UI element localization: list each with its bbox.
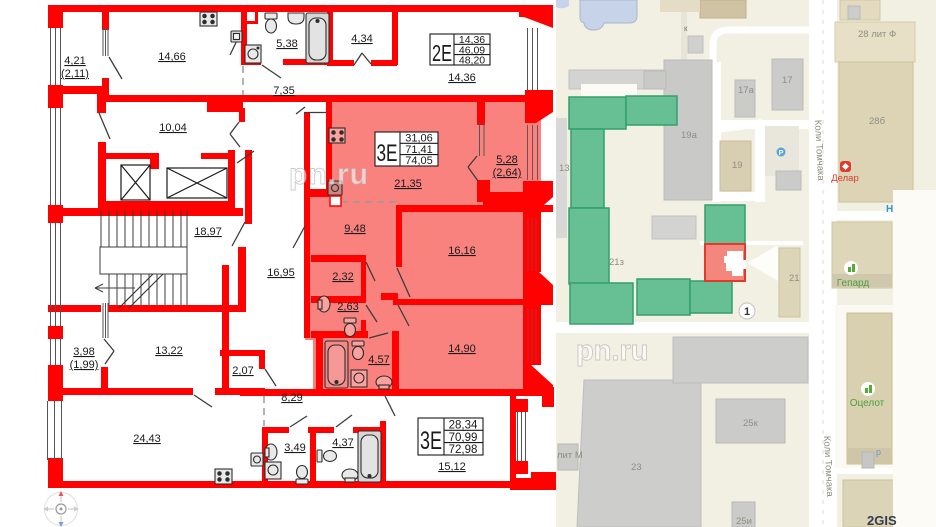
svg-text:21,35: 21,35 (394, 178, 422, 190)
svg-text:к: к (684, 24, 688, 33)
svg-text:3,49: 3,49 (284, 442, 305, 454)
svg-text:2,63: 2,63 (337, 301, 358, 313)
svg-text:pn.ru: pn.ru (576, 335, 649, 367)
svg-text:10,04: 10,04 (159, 122, 187, 134)
svg-text:(2,64): (2,64) (493, 167, 522, 179)
svg-text:5,28: 5,28 (496, 154, 517, 166)
svg-text:13,22: 13,22 (155, 345, 183, 357)
svg-text:21з: 21з (609, 257, 624, 268)
svg-text:4,57: 4,57 (368, 354, 389, 366)
svg-text:7,35: 7,35 (273, 85, 294, 97)
svg-text:14,36: 14,36 (448, 72, 476, 84)
svg-text:2,32: 2,32 (332, 271, 353, 283)
svg-text:31,06: 31,06 (405, 133, 433, 145)
svg-text:16,16: 16,16 (448, 245, 476, 257)
svg-text:Делар: Делар (831, 173, 859, 184)
svg-text:р: р (876, 447, 881, 457)
svg-text:8,29: 8,29 (281, 392, 302, 404)
svg-text:2Е: 2Е (432, 40, 452, 66)
svg-text:2GIS: 2GIS (867, 513, 897, 527)
svg-text:14,90: 14,90 (448, 343, 476, 355)
svg-text:3Е: 3Е (377, 140, 398, 167)
svg-text:2,07: 2,07 (232, 365, 253, 377)
svg-text:Н: Н (886, 204, 893, 215)
svg-text:4,34: 4,34 (351, 33, 372, 45)
svg-text:pn.ru: pn.ru (289, 158, 369, 191)
svg-text:24,43: 24,43 (133, 433, 161, 445)
svg-text:3Е: 3Е (420, 427, 442, 455)
svg-text:19а: 19а (681, 130, 698, 141)
svg-text:Гепард: Гепард (837, 278, 870, 289)
svg-text:74,05: 74,05 (405, 155, 433, 167)
svg-text:Р: Р (778, 148, 783, 157)
svg-text:4,21: 4,21 (64, 55, 85, 67)
svg-text:14,66: 14,66 (158, 51, 186, 63)
svg-text:25к: 25к (743, 418, 759, 429)
svg-text:28,34: 28,34 (449, 420, 478, 432)
svg-text:(1,99): (1,99) (70, 359, 99, 371)
svg-text:18,97: 18,97 (194, 226, 222, 238)
svg-text:4,37: 4,37 (332, 437, 353, 449)
svg-text:17а: 17а (738, 85, 755, 96)
svg-text:Оцелот: Оцелот (850, 398, 885, 409)
svg-text:15,12: 15,12 (438, 461, 466, 473)
svg-text:28б: 28б (869, 116, 886, 127)
svg-text:5,38: 5,38 (276, 38, 297, 50)
svg-text:28 лит Ф: 28 лит Ф (858, 29, 896, 40)
svg-text:70,99: 70,99 (449, 432, 478, 444)
svg-text:23: 23 (631, 462, 642, 473)
svg-text:1: 1 (744, 306, 750, 318)
svg-text:лит М: лит М (557, 450, 583, 461)
svg-text:3,98: 3,98 (73, 346, 94, 358)
svg-text:25и: 25и (736, 516, 752, 527)
svg-text:21: 21 (789, 273, 800, 284)
svg-text:16,95: 16,95 (267, 267, 295, 279)
svg-text:19: 19 (732, 160, 743, 171)
svg-text:71,41: 71,41 (405, 144, 433, 156)
svg-text:17: 17 (782, 75, 793, 86)
svg-text:9,48: 9,48 (344, 223, 365, 235)
svg-text:72,98: 72,98 (449, 444, 478, 456)
svg-text:(2,11): (2,11) (61, 68, 89, 80)
svg-text:13: 13 (559, 163, 570, 174)
svg-text:48,20: 48,20 (459, 55, 485, 67)
